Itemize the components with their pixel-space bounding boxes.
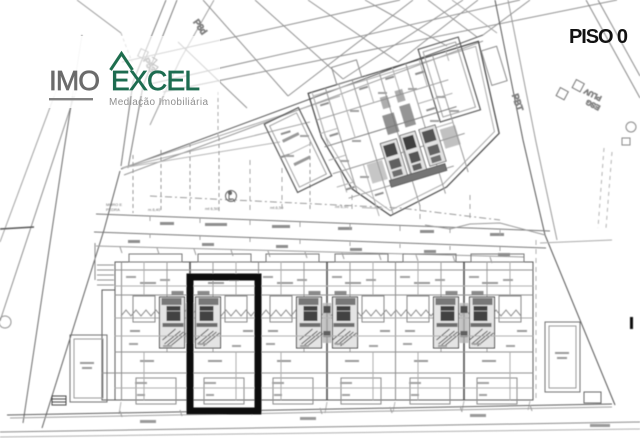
svg-text:EXCEL: EXCEL [111, 65, 200, 96]
svg-text:PEDRA: PEDRA [106, 207, 120, 212]
svg-text:mt 6,50: mt 6,50 [205, 206, 219, 211]
svg-text:m.6,40: m.6,40 [148, 207, 161, 212]
svg-text:PISO 0: PISO 0 [569, 26, 628, 48]
svg-text:IMO: IMO [49, 65, 100, 96]
svg-text:Mediação Imobiliária: Mediação Imobiliária [109, 97, 208, 108]
svg-text:mt 6,50: mt 6,50 [335, 204, 349, 209]
